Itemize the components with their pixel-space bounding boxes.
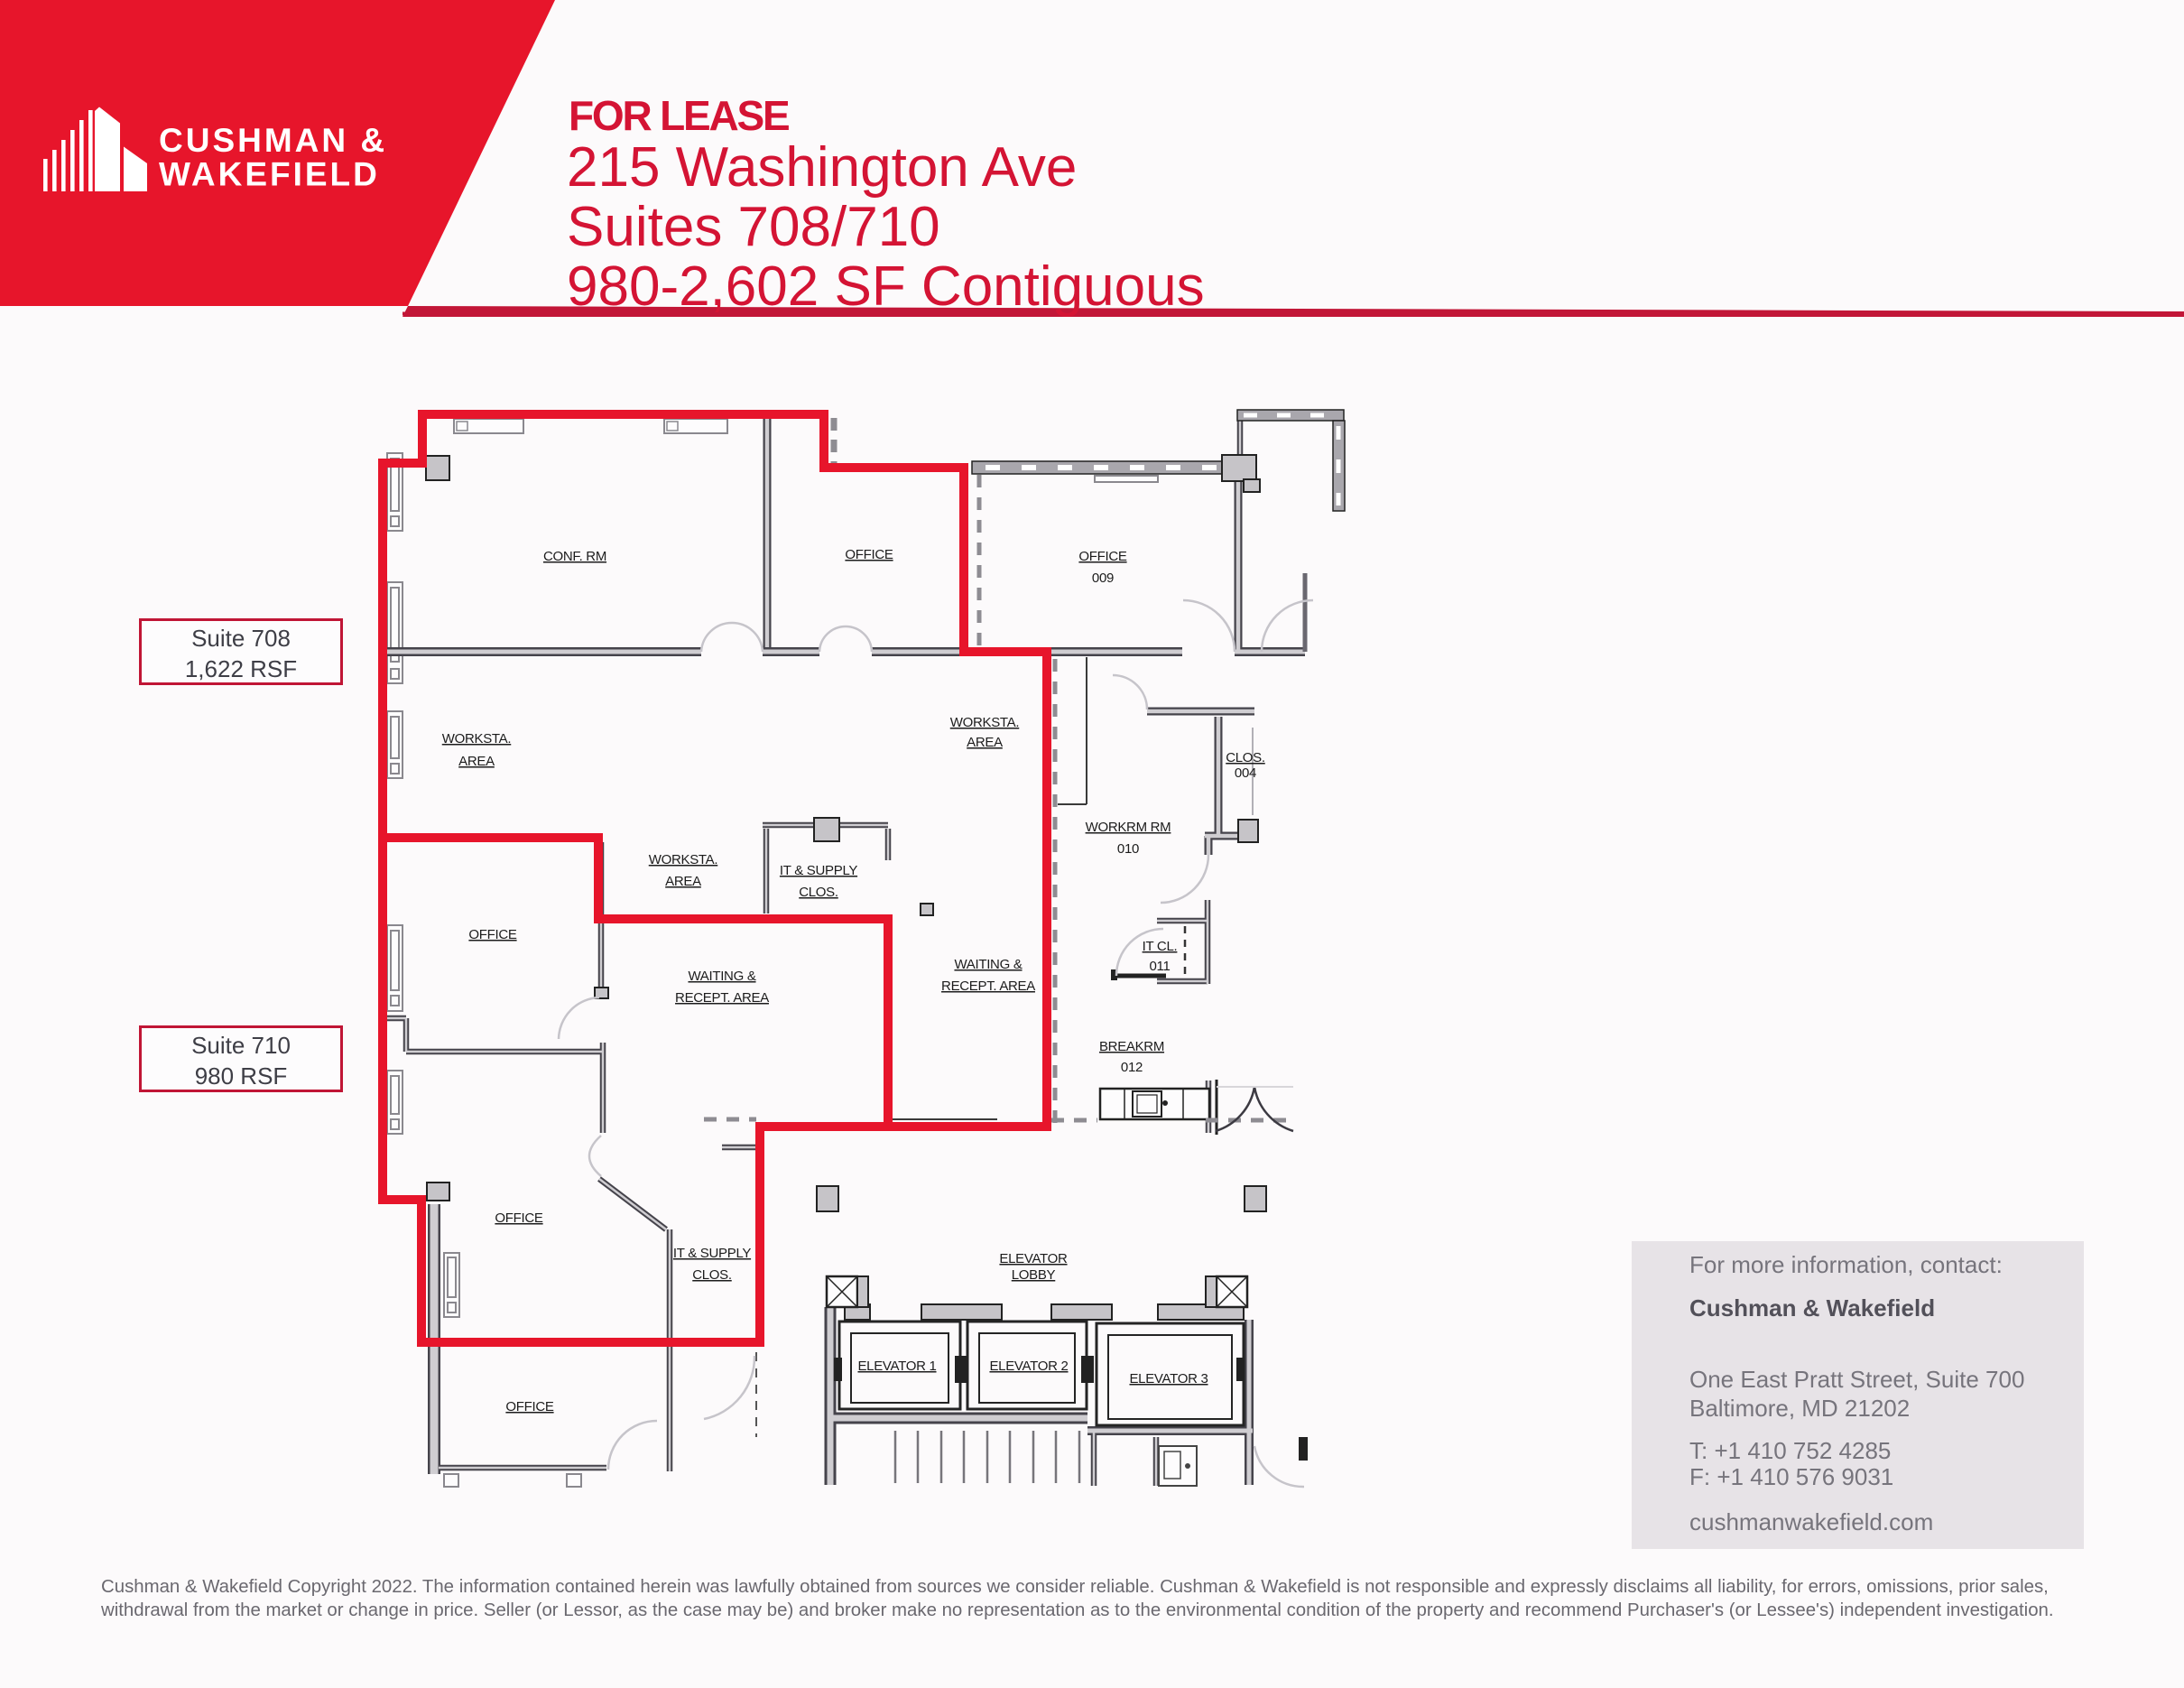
- svg-text:OFFICE: OFFICE: [845, 547, 893, 562]
- svg-text:WORKSTA.: WORKSTA.: [649, 852, 718, 867]
- svg-text:CONF. RM: CONF. RM: [543, 549, 606, 564]
- svg-text:CUSHMAN &: CUSHMAN &: [159, 122, 387, 159]
- svg-text:AREA: AREA: [967, 735, 1003, 750]
- svg-text:012: 012: [1121, 1060, 1143, 1075]
- svg-text:OFFICE: OFFICE: [495, 1210, 542, 1226]
- svg-text:WAKEFIELD: WAKEFIELD: [159, 156, 380, 193]
- svg-text:ELEVATOR 1: ELEVATOR 1: [857, 1359, 936, 1374]
- svg-text:004: 004: [1235, 765, 1256, 781]
- svg-text:RECEPT. AREA: RECEPT. AREA: [941, 978, 1035, 994]
- svg-text:BREAKRM: BREAKRM: [1099, 1039, 1164, 1054]
- svg-text:009: 009: [1092, 570, 1114, 586]
- svg-text:ELEVATOR: ELEVATOR: [999, 1251, 1068, 1266]
- svg-text:AREA: AREA: [458, 754, 495, 769]
- svg-text:RECEPT. AREA: RECEPT. AREA: [675, 990, 769, 1006]
- svg-text:010: 010: [1117, 841, 1139, 857]
- svg-text:WORKSTA.: WORKSTA.: [950, 715, 1020, 730]
- svg-text:011: 011: [1149, 959, 1170, 974]
- svg-text:CLOS.: CLOS.: [692, 1267, 732, 1283]
- svg-text:ELEVATOR 3: ELEVATOR 3: [1129, 1371, 1208, 1387]
- svg-text:LOBBY: LOBBY: [1012, 1267, 1056, 1283]
- svg-text:WORKSTA.: WORKSTA.: [442, 731, 512, 747]
- svg-text:OFFICE: OFFICE: [468, 927, 516, 942]
- svg-text:AREA: AREA: [665, 874, 701, 889]
- svg-text:ELEVATOR 2: ELEVATOR 2: [989, 1359, 1068, 1374]
- svg-text:IT & SUPPLY: IT & SUPPLY: [780, 863, 857, 878]
- svg-text:CLOS.: CLOS.: [1226, 750, 1265, 765]
- svg-text:IT & SUPPLY: IT & SUPPLY: [673, 1246, 751, 1261]
- svg-text:WAITING &: WAITING &: [688, 969, 755, 984]
- svg-text:WORKRM RM: WORKRM RM: [1086, 820, 1171, 835]
- svg-text:CLOS.: CLOS.: [799, 885, 838, 900]
- svg-text:OFFICE: OFFICE: [1078, 549, 1126, 564]
- svg-text:OFFICE: OFFICE: [505, 1399, 553, 1414]
- svg-text:IT CL.: IT CL.: [1143, 939, 1178, 954]
- svg-text:WAITING &: WAITING &: [954, 957, 1022, 972]
